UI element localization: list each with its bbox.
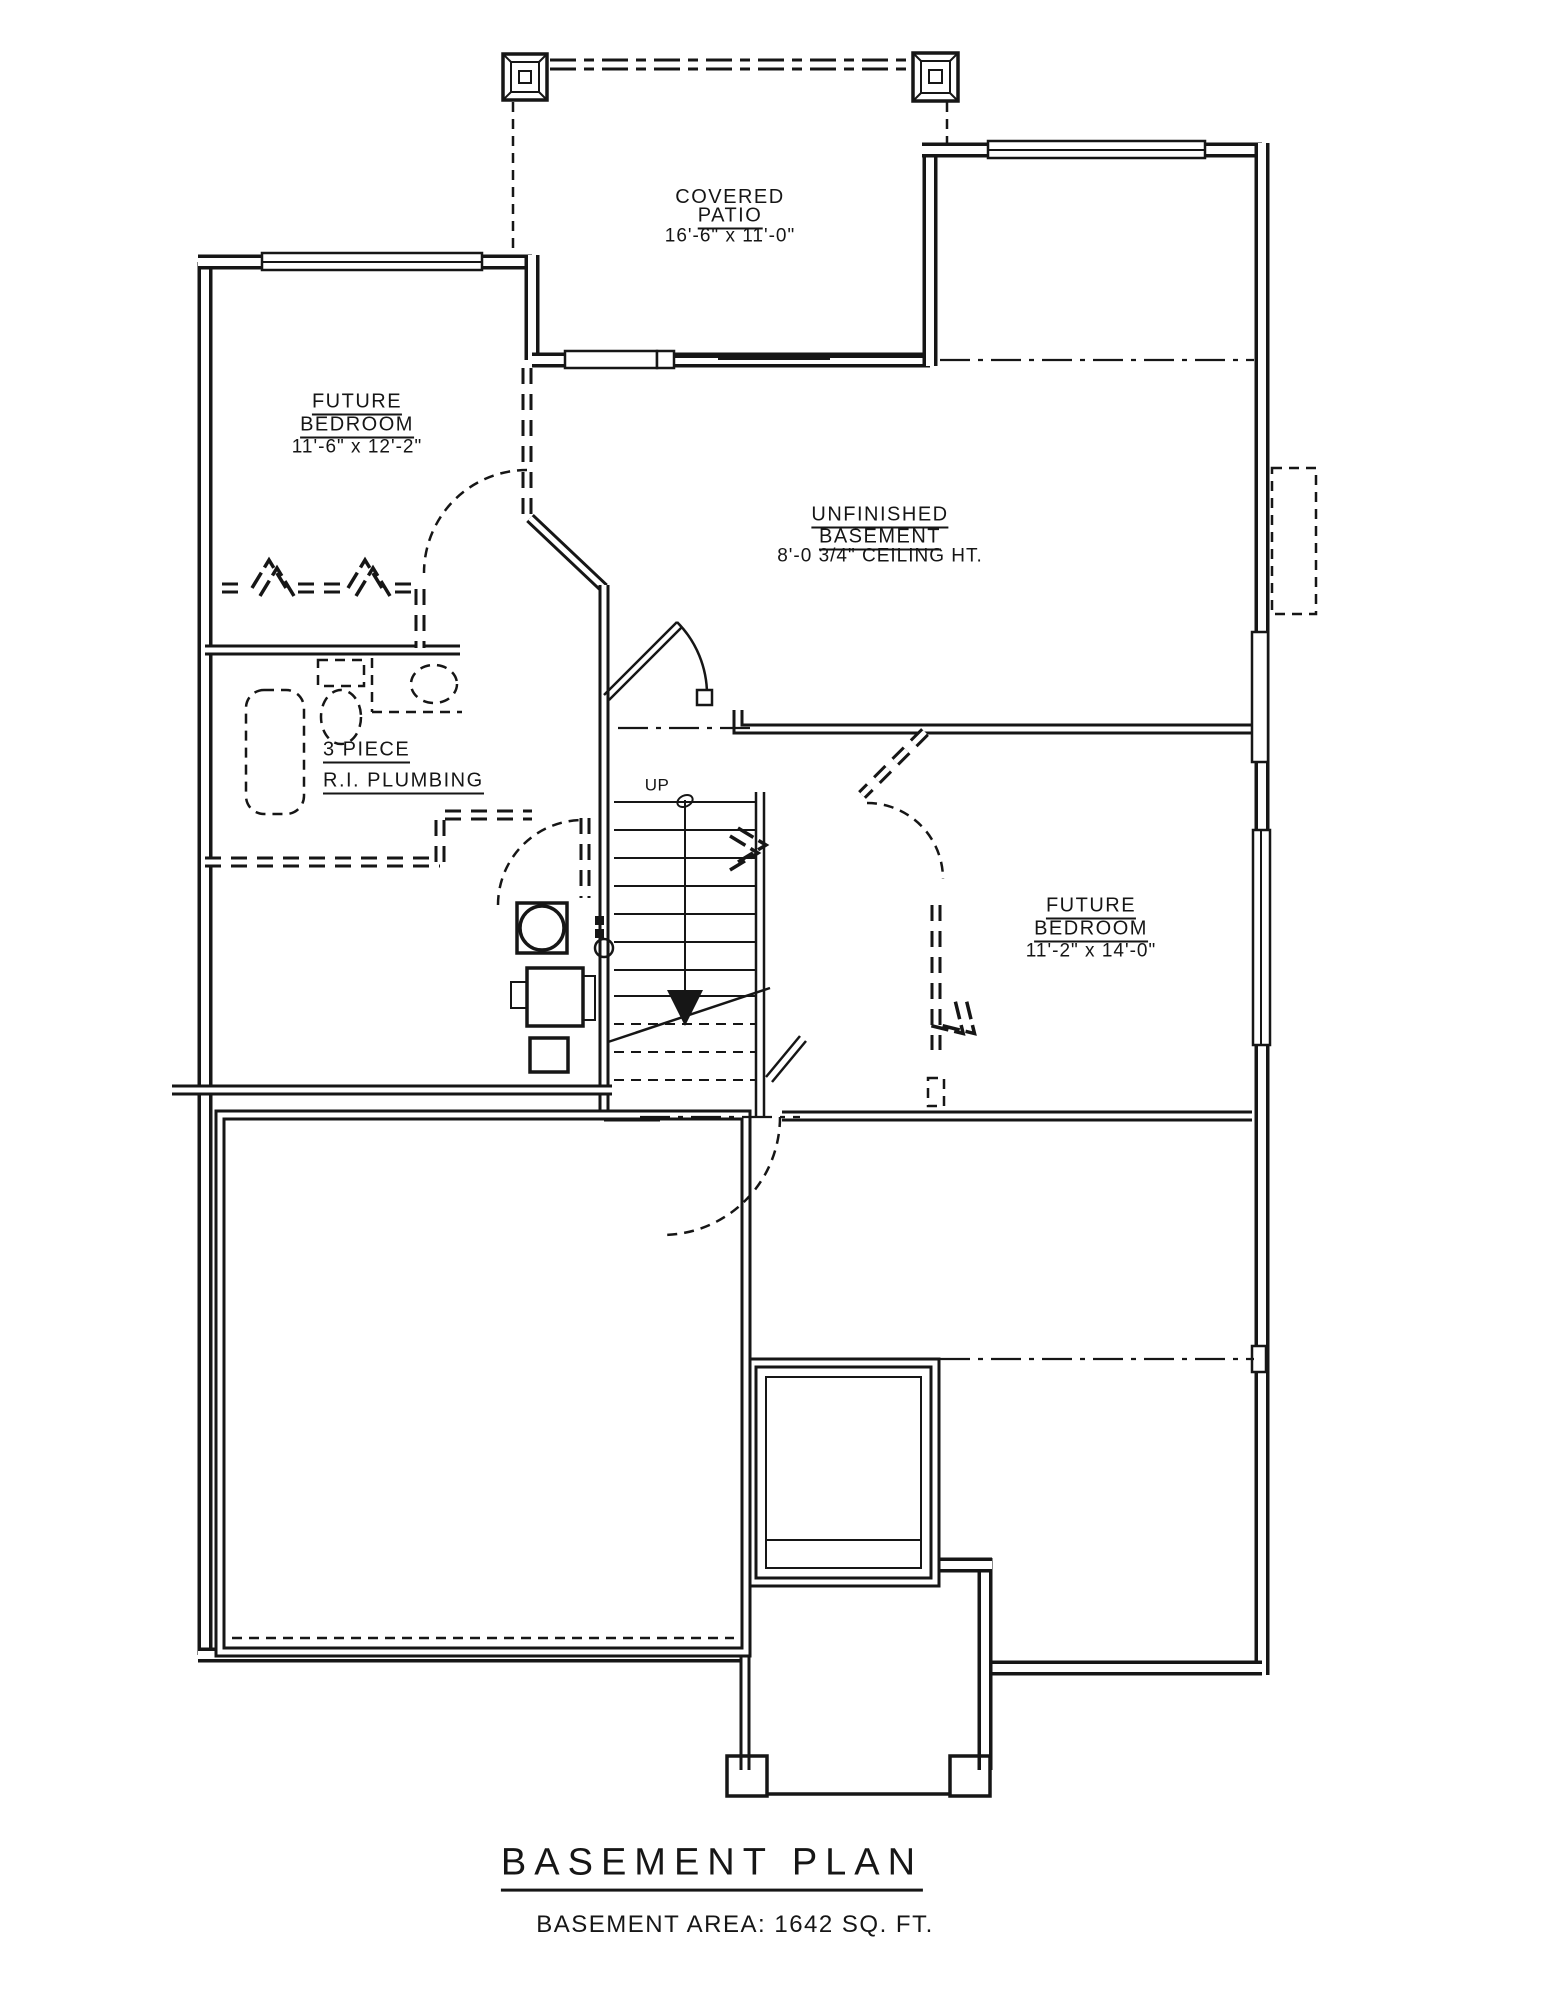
page-subtitle: BASEMENT AREA: 1642 SQ. FT. xyxy=(536,1912,934,1938)
bedroom-left-dims: 11'-6" x 12'-2" xyxy=(292,438,422,459)
patio-dims: 16'-6" x 11'-0" xyxy=(665,227,795,248)
windows xyxy=(262,141,1316,1372)
bath-label-line2: R.I. PLUMBING xyxy=(323,770,484,795)
patio-post-right-icon xyxy=(913,53,958,101)
chevron-marker-icon xyxy=(348,560,390,596)
future-door-arc-left-icon xyxy=(424,470,527,573)
bedroom-right-dims: 11'-2" x 14'-0" xyxy=(1026,942,1156,963)
patio-slider-panel-icon xyxy=(718,354,830,360)
equipment-box-icon xyxy=(530,1038,568,1072)
bedroom-right-label-line1: FUTURE xyxy=(1046,895,1136,920)
floor-plan-page: COVERED PATIO 16'-6" x 11'-0" FUTURE BED… xyxy=(0,0,1545,2000)
bath-label-line1: 3 PIECE xyxy=(323,739,410,764)
patio-post-left-icon xyxy=(503,54,547,100)
furnace-icon xyxy=(511,968,595,1026)
interior-walls xyxy=(172,518,1252,1652)
future-walls-dashed xyxy=(205,368,936,1050)
window-well-icon xyxy=(1272,468,1316,614)
floor-plan-drawing xyxy=(0,0,1545,2000)
future-door-arc-right-icon xyxy=(867,803,943,879)
page-title: BASEMENT PLAN xyxy=(501,1843,923,1892)
patio-door-icon xyxy=(565,351,657,368)
stairs-up-label: UP xyxy=(645,777,670,796)
bedroom-left-label-line2: BEDROOM xyxy=(300,414,414,439)
mechanical-equipment xyxy=(511,903,595,1072)
basement-ceiling-note: 8'-0 3/4" CEILING HT. xyxy=(777,547,983,568)
bedroom-right-label-line2: BEDROOM xyxy=(1034,918,1148,943)
beam-pocket-icon xyxy=(1252,1346,1266,1372)
stairs xyxy=(595,792,770,1116)
water-heater-icon xyxy=(517,903,567,953)
chevron-marker-icon xyxy=(252,560,294,596)
door-arc-basement-icon xyxy=(662,1117,780,1235)
bedroom-left-label-line1: FUTURE xyxy=(312,391,402,416)
stair-bottom-door-icon xyxy=(766,1036,800,1077)
sink-icon xyxy=(411,665,457,703)
future-wall-markers xyxy=(252,560,987,1051)
stair-door-arc-icon xyxy=(677,622,707,695)
toilet-icon xyxy=(318,660,364,744)
window-right-upper-icon xyxy=(1252,632,1268,762)
future-door-arc-bath-icon xyxy=(498,820,583,905)
chevron-marker-icon xyxy=(730,828,766,870)
bathtub-icon xyxy=(246,690,304,814)
